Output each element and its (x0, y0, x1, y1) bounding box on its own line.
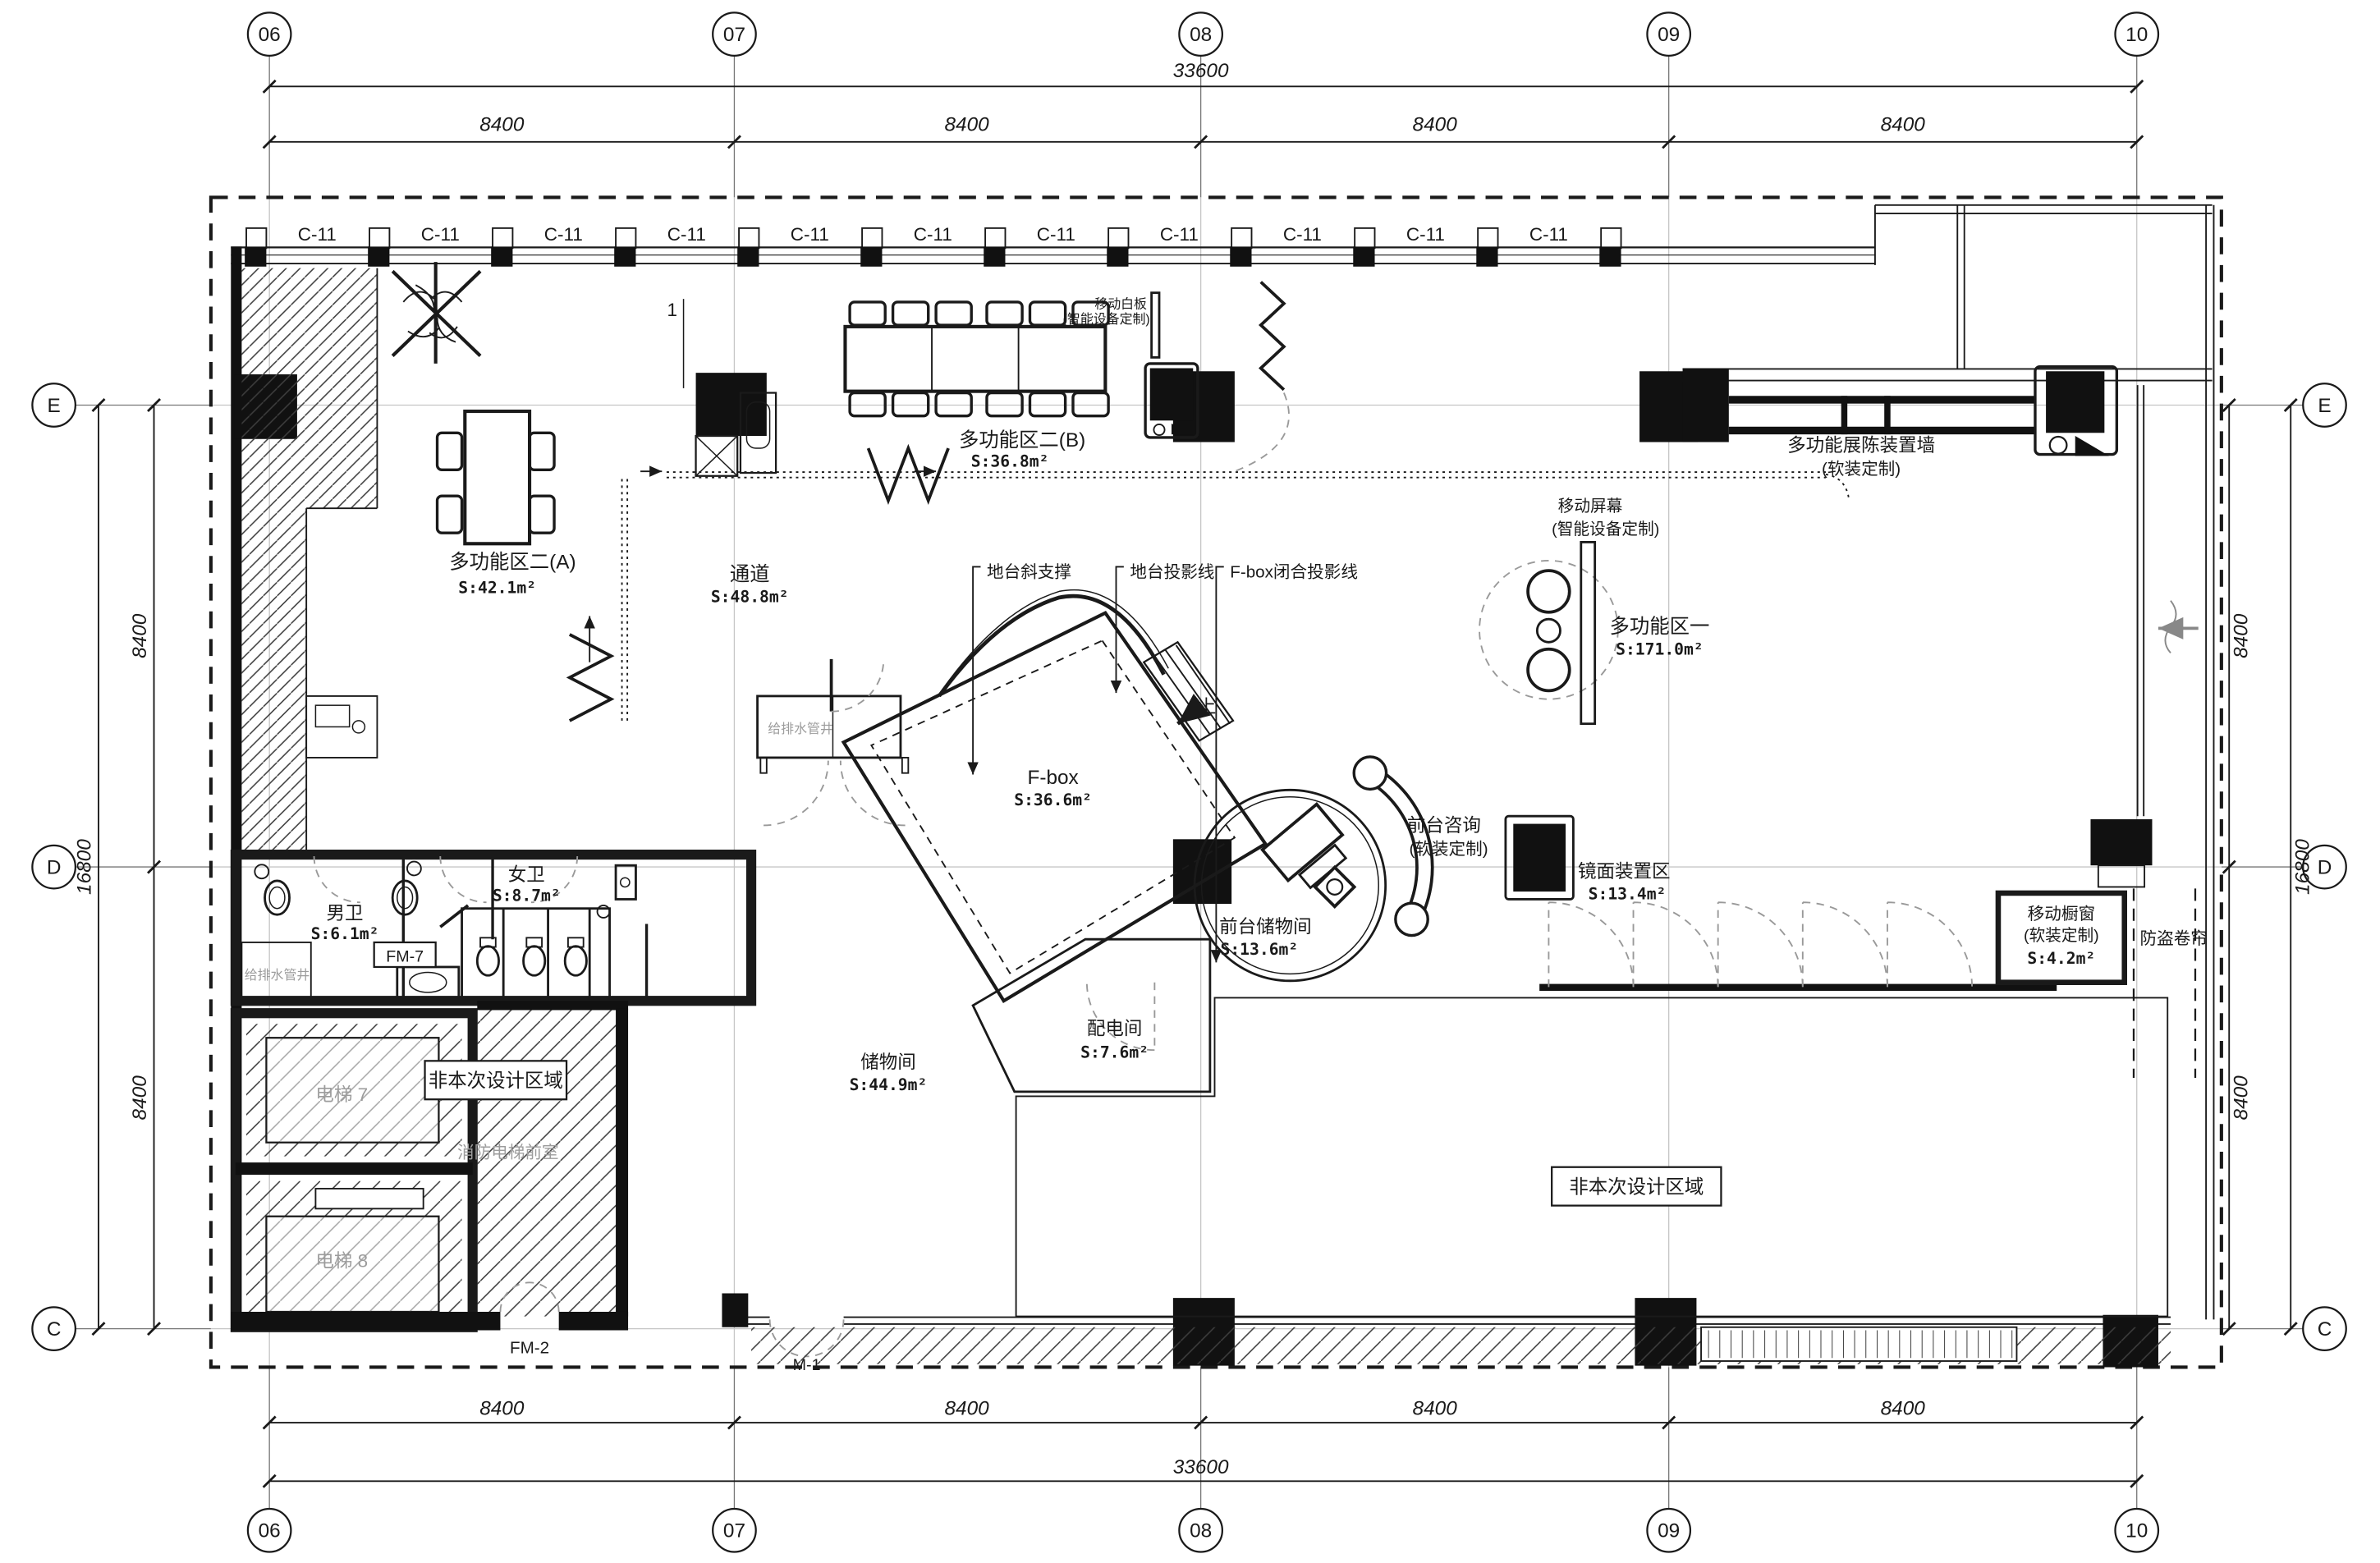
not-in-scope-label-b: 非本次设计区域 (1569, 1176, 1704, 1198)
room-mfa-name: 多功能区二(A) (449, 551, 576, 573)
window-label-c11-9: C-11 (1283, 224, 1322, 245)
pipe-shaft-mid-label: 给排水管井 (768, 722, 833, 736)
room-mf1-area: S:171.0m² (1616, 639, 1704, 658)
dim-left-8400-1: 8400 (129, 613, 151, 658)
dim-bottom-8400-3: 8400 (1413, 1398, 1458, 1420)
dim-right-8400-1: 8400 (2231, 613, 2253, 658)
facade-columns: C-11 C-11 C-11 C-11 C-11 C-11 C-11 C-11 … (245, 224, 1621, 267)
dim-left-8400-2: 8400 (129, 1075, 151, 1121)
room-power-name: 配电间 (1087, 1018, 1143, 1038)
screen-label-2: (智能设备定制) (1552, 520, 1659, 539)
fire-lobby-label: 消防电梯前室 (457, 1143, 559, 1162)
room-female-wc-area: S:8.7m² (493, 886, 561, 905)
dim-bottom-8400-4: 8400 (1881, 1398, 1926, 1420)
grid-row-D-left: D (47, 857, 62, 879)
room-mfb-area: S:36.8m² (971, 452, 1049, 471)
room-female-wc-name: 女卫 (508, 864, 545, 885)
grid-col-10-top: 10 (2125, 24, 2148, 46)
entrance-arrow (2158, 601, 2199, 653)
door-fm2-label: FM-2 (510, 1339, 549, 1358)
dim-top-total: 33600 (1173, 60, 1229, 82)
dim-top-8400-4: 8400 (1881, 114, 1926, 136)
door-fm7-label: FM-7 (386, 947, 424, 965)
elevator-8-label: 电梯 8 (315, 1251, 368, 1272)
dim-left-total: 16800 (74, 839, 96, 895)
shaft-column-07 (696, 373, 777, 476)
room-mirror-name: 镜面装置区 (1578, 861, 1671, 882)
callout-platform-projection: 地台投影线 (1130, 563, 1214, 582)
showcase-area: S:4.2m² (2027, 949, 2095, 968)
room-power-area: S:7.6m² (1080, 1043, 1149, 1062)
folding-partitions (570, 282, 1284, 721)
room-fbox-area: S:36.6m² (1014, 791, 1092, 809)
room-corridor-area: S:48.8m² (711, 588, 789, 607)
window-label-c11-4: C-11 (667, 224, 706, 245)
window-label-c11-7: C-11 (1037, 224, 1075, 245)
dim-bottom-total: 33600 (1173, 1456, 1229, 1478)
dim-bottom-8400-2: 8400 (945, 1398, 990, 1420)
left-hatch-strip (241, 268, 377, 850)
grid-col-06-bottom: 06 (259, 1520, 281, 1542)
window-label-c11-6: C-11 (914, 224, 952, 245)
elevator-7-label: 电梯 7 (315, 1084, 368, 1105)
dim-bottom-8400-1: 8400 (479, 1398, 525, 1420)
reception-label-1: 前台咨询 (1407, 815, 1481, 836)
movable-showcase: 移动橱窗 (软装定制) S:4.2m² 防盗卷帘 (1998, 888, 2208, 1078)
dim-right-8400-2: 8400 (2231, 1075, 2253, 1121)
display-wall: 多功能展陈装置墙 (软装定制) (1683, 367, 2213, 479)
room-mfa-area: S:42.1m² (458, 578, 536, 597)
not-in-scope-label-a: 非本次设计区域 (429, 1070, 563, 1091)
window-label-c11-8: C-11 (1160, 224, 1199, 245)
pipe-shaft-room: 给排水管井 (758, 696, 909, 826)
not-in-scope-region-main: 非本次设计区域 (1016, 997, 2168, 1316)
pipe-shaft-left-label: 给排水管井 (245, 968, 310, 983)
grid-row-E-right: E (2318, 395, 2331, 417)
grid-row-E-left: E (48, 395, 61, 417)
grid-col-08-bottom: 08 (1190, 1520, 1212, 1542)
dim-top-8400-2: 8400 (945, 114, 990, 136)
grid-row-D-right: D (2318, 857, 2332, 879)
window-label-c11-11: C-11 (1529, 224, 1568, 245)
detail-marker: 1 (667, 300, 678, 320)
showcase-name: 移动橱窗 (2028, 905, 2095, 924)
room-male-wc-area: S:6.1m² (311, 924, 379, 943)
grid-row-C-left: C (47, 1318, 62, 1341)
room-fbox-name: F-box (1027, 767, 1078, 789)
window-labels: C-11 C-11 C-11 C-11 C-11 C-11 C-11 C-11 … (298, 224, 1568, 245)
room-mfb-name: 多功能区二(B) (959, 429, 1085, 451)
bathroom-block: FM-7 给排水管井 男卫 S:6.1m² 女卫 S:8.7m² (236, 855, 751, 1001)
room-mf1-name: 多功能区一 (1610, 616, 1710, 638)
grid-col-08-top: 08 (1190, 24, 1212, 46)
screen-label-1: 移动屏幕 (1558, 497, 1623, 516)
mirror-zone: 镜面装置区 S:13.4m² (1506, 816, 2057, 991)
shutter-label: 防盗卷帘 (2139, 929, 2207, 948)
fbox-door (832, 659, 884, 712)
grid-col-10-bottom: 10 (2125, 1520, 2148, 1542)
callout-fbox-projection: F-box闭合投影线 (1230, 563, 1358, 582)
movable-screen: 移动屏幕 (智能设备定制) (1479, 497, 1659, 724)
dim-top-8400-1: 8400 (479, 114, 525, 136)
display-wall-label-1: 多功能展陈装置墙 (1787, 435, 1935, 456)
reception-label-2: (软装定制) (1409, 840, 1488, 859)
room-storage-name: 储物间 (860, 1052, 916, 1073)
bottom-band (751, 1327, 2171, 1364)
window-label-c11-10: C-11 (1406, 224, 1445, 245)
whiteboard-label-2: (智能设备定制) (1063, 312, 1150, 327)
grid-col-06-top: 06 (259, 24, 281, 46)
window-label-c11-2: C-11 (421, 224, 460, 245)
grid-col-07-bottom: 07 (723, 1520, 745, 1542)
room-corridor-name: 通道 (730, 563, 770, 585)
room-mirror-area: S:13.4m² (1589, 884, 1667, 903)
column-device (2098, 865, 2144, 887)
room-male-wc-name: 男卫 (327, 903, 364, 924)
power-room-outline (973, 939, 1210, 1092)
ramp: 上 (1144, 642, 1233, 740)
dim-top-8400-3: 8400 (1413, 114, 1458, 136)
grid-col-09-bottom: 09 (1658, 1520, 1680, 1542)
callout-platform-support: 地台斜支撑 (987, 563, 1071, 582)
showcase-sub: (软装定制) (2024, 927, 2099, 945)
room-reception-storage-name: 前台储物间 (1219, 917, 1312, 937)
display-wall-label-2: (软装定制) (1822, 460, 1901, 479)
room-reception-storage-area: S:13.6m² (1221, 940, 1299, 959)
ramp-up-label: 上 (1198, 697, 1217, 717)
window-label-c11-1: C-11 (298, 224, 337, 245)
dim-right-total: 16800 (2292, 839, 2314, 895)
whiteboard-label-1: 移动白板 (1094, 296, 1147, 311)
window-label-c11-3: C-11 (544, 224, 583, 245)
plant-icon (392, 262, 480, 364)
grid-col-07-top: 07 (723, 24, 745, 46)
room-storage-area: S:44.9m² (850, 1075, 928, 1094)
grid-col-09-top: 09 (1658, 24, 1680, 46)
window-label-c11-5: C-11 (791, 224, 829, 245)
grid-row-C-right: C (2318, 1318, 2332, 1341)
small-table (438, 411, 555, 543)
floor-plan-drawing: 06 07 08 09 10 06 07 08 09 10 E D C E D … (0, 0, 2380, 1563)
